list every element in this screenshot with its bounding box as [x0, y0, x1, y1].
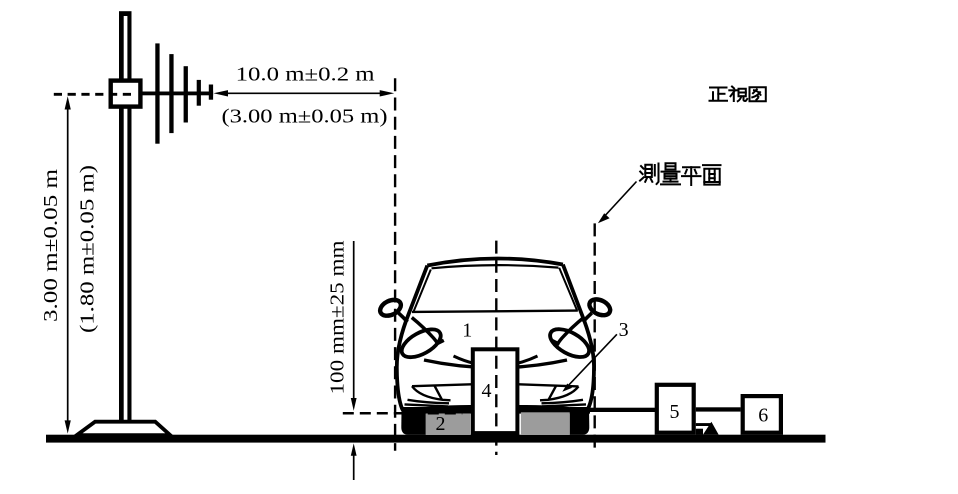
- svg-text:3: 3: [619, 319, 629, 341]
- svg-text:6: 6: [758, 405, 768, 427]
- svg-text:10.0 m±0.2 m: 10.0 m±0.2 m: [236, 65, 375, 86]
- svg-text:100 mm±25 mm: 100 mm±25 mm: [328, 241, 349, 395]
- svg-text:5: 5: [670, 401, 680, 423]
- svg-text:(3.00 m±0.05 m): (3.00 m±0.05 m): [222, 107, 388, 128]
- svg-text:3.00 m±0.05 m: 3.00 m±0.05 m: [41, 169, 62, 322]
- svg-text:(1.80 m±0.05 m): (1.80 m±0.05 m): [78, 165, 99, 333]
- svg-text:1: 1: [462, 320, 472, 342]
- svg-text:2: 2: [436, 413, 446, 435]
- svg-text:4: 4: [482, 380, 492, 402]
